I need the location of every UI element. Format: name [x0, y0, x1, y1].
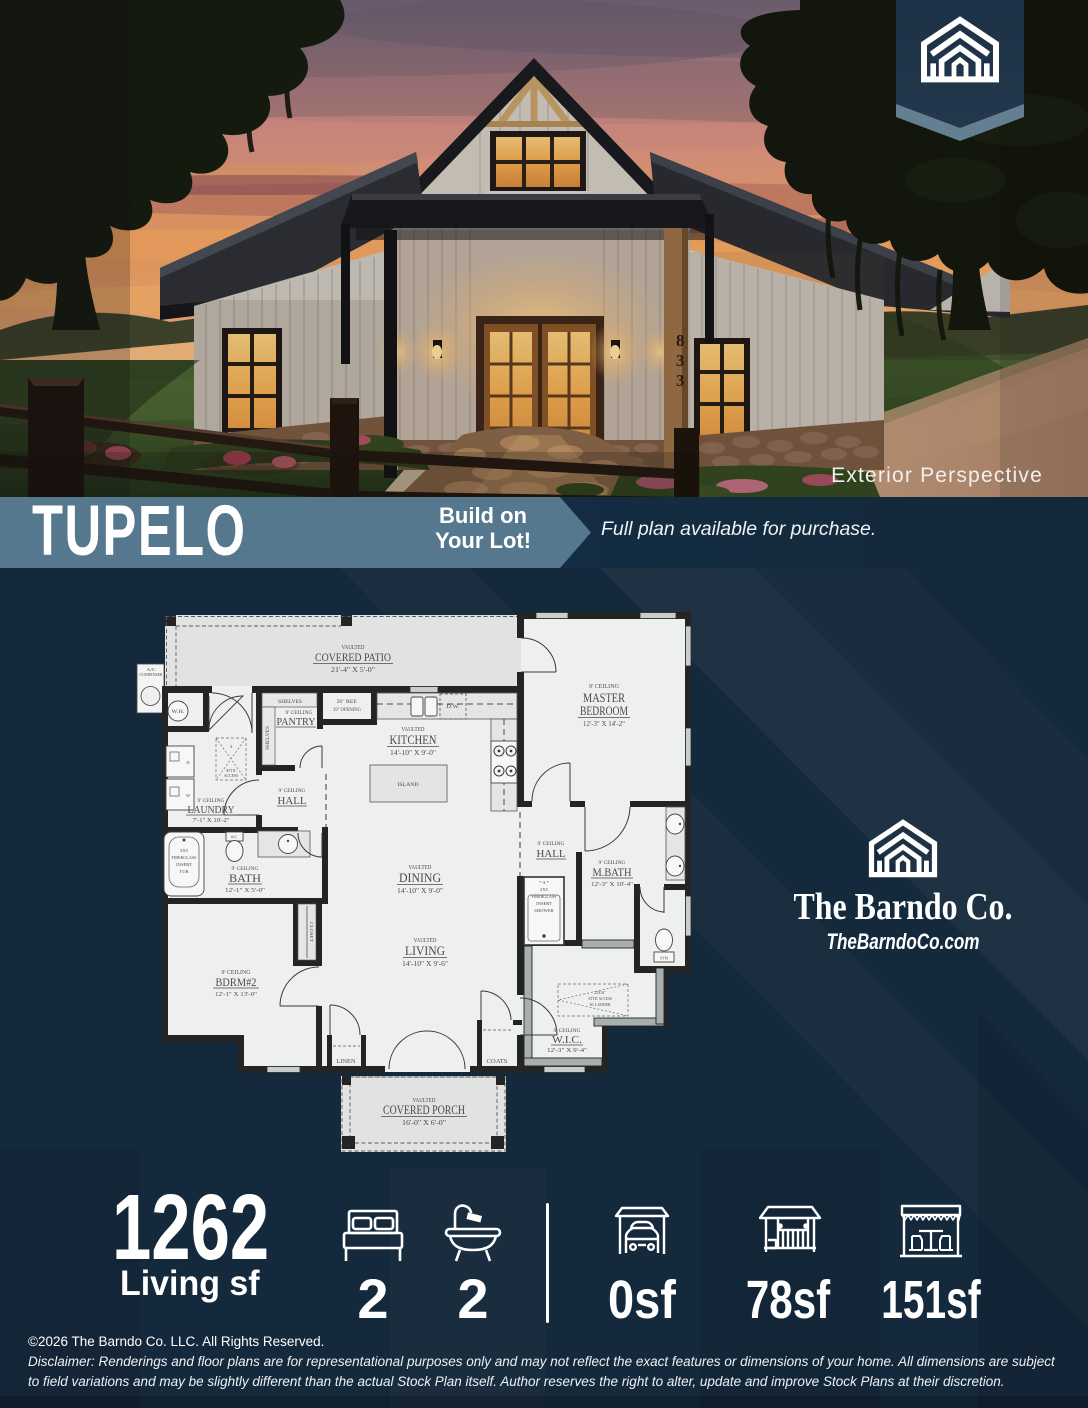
svg-text:D.W.: D.W.	[447, 705, 460, 710]
svg-text:SHELVES: SHELVES	[278, 700, 302, 705]
svg-text:ATTIC: ATTIC	[226, 769, 237, 773]
svg-text:W.H.: W.H.	[172, 710, 185, 715]
svg-text:FIBERGLASS: FIBERGLASS	[172, 855, 197, 860]
svg-text:ACCESS: ACCESS	[224, 774, 238, 778]
svg-text:BDRM#2: BDRM#2	[216, 977, 257, 989]
svg-text:COVERED PATIO: COVERED PATIO	[315, 650, 391, 664]
svg-text:9' CEILING: 9' CEILING	[279, 788, 306, 794]
svg-text:9' CEILING: 9' CEILING	[538, 841, 565, 847]
svg-text:21'-4" X 5'-0": 21'-4" X 5'-0"	[331, 666, 375, 674]
svg-text:BEDROOM: BEDROOM	[580, 704, 628, 718]
svg-text:INSERT: INSERT	[536, 901, 552, 906]
svg-text:LAUNDRY: LAUNDRY	[188, 804, 235, 816]
svg-text:COATS: COATS	[487, 1059, 508, 1065]
svg-text:14'-10" X 9'-0": 14'-10" X 9'-0"	[397, 887, 443, 895]
svg-text:LIVING: LIVING	[405, 944, 445, 958]
svg-text:CLOSET: CLOSET	[309, 922, 314, 942]
svg-text:KITCHEN: KITCHEN	[390, 733, 437, 747]
svg-text:HALL: HALL	[278, 795, 307, 807]
svg-text:DINING: DINING	[399, 871, 441, 885]
svg-text:9' CEILING: 9' CEILING	[589, 684, 620, 690]
svg-text:* A *: * A *	[539, 880, 549, 885]
svg-text:16'-0" X 6'-0": 16'-0" X 6'-0"	[402, 1119, 446, 1127]
svg-text:W.I.C.: W.I.C.	[552, 1034, 582, 1046]
svg-text:COVERED PORCH: COVERED PORCH	[383, 1103, 465, 1117]
svg-text:PANTRY: PANTRY	[277, 716, 316, 728]
svg-text:39" OPENING: 39" OPENING	[333, 708, 361, 713]
svg-text:12'-3" X 9'-4": 12'-3" X 9'-4"	[547, 1047, 587, 1054]
svg-text:12'-3" X 10'-4": 12'-3" X 10'-4"	[591, 881, 633, 888]
svg-text:MASTER: MASTER	[583, 691, 626, 705]
svg-text:HALL: HALL	[537, 848, 566, 860]
svg-text:Exterior Perspective: Exterior Perspective	[831, 464, 1043, 487]
svg-text:INSERT: INSERT	[176, 862, 192, 867]
svg-text:12'-3" X 14'-2": 12'-3" X 14'-2"	[583, 720, 625, 728]
svg-text:FIBERGLASS: FIBERGLASS	[532, 894, 557, 899]
svg-text:14'-10" X 9'-6": 14'-10" X 9'-6"	[402, 960, 448, 968]
svg-text:26" REF.: 26" REF.	[337, 700, 358, 705]
svg-text:14'-10" X 9'-0": 14'-10" X 9'-0"	[390, 749, 436, 757]
svg-text:22X54": 22X54"	[594, 991, 606, 995]
svg-text:SHOWER: SHOWER	[534, 908, 554, 913]
svg-text:ATTIC ACCESS: ATTIC ACCESS	[588, 997, 612, 1001]
svg-text:2X5: 2X5	[540, 887, 549, 892]
svg-text:W/C: W/C	[231, 836, 238, 840]
svg-text:TUB: TUB	[179, 869, 188, 874]
svg-text:LINEN: LINEN	[337, 1059, 357, 1065]
svg-text:12'-1" X 13'-0": 12'-1" X 13'-0"	[215, 991, 257, 998]
svg-text:SYM: SYM	[660, 957, 669, 961]
svg-text:M.BATH: M.BATH	[593, 867, 632, 879]
svg-text:ISLAND: ISLAND	[398, 782, 419, 788]
svg-text:9' CEILING: 9' CEILING	[222, 970, 252, 976]
svg-text:The Barndo Co.: The Barndo Co.	[794, 886, 1013, 928]
svg-text:12'-1" X 5'-0": 12'-1" X 5'-0"	[225, 887, 265, 894]
svg-text:7'-1" X 10'-2": 7'-1" X 10'-2"	[193, 817, 230, 824]
svg-text:A: A	[230, 745, 233, 749]
svg-text:9' CEILING: 9' CEILING	[599, 860, 626, 866]
svg-text:W/ LADDER: W/ LADDER	[590, 1003, 611, 1007]
svg-text:TheBarndoCo.com: TheBarndoCo.com	[827, 929, 980, 954]
svg-text:3X5: 3X5	[180, 848, 189, 853]
svg-text:CONDENSER: CONDENSER	[140, 672, 163, 677]
svg-text:BATH: BATH	[229, 871, 261, 885]
svg-text:SHELVES: SHELVES	[266, 726, 271, 750]
